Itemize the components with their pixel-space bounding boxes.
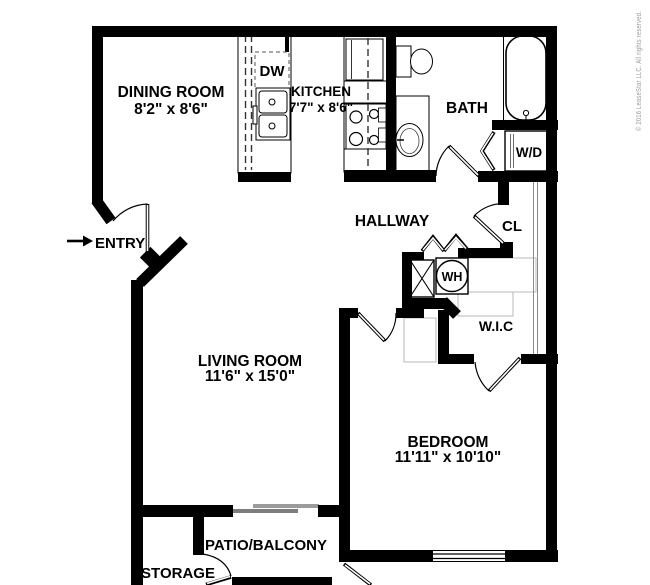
wd-bifold-door bbox=[482, 132, 494, 170]
wall-whcloset-top-stub bbox=[402, 252, 424, 260]
entry-door-arc bbox=[113, 204, 148, 221]
burner-icon bbox=[370, 136, 379, 145]
storage-label: STORAGE bbox=[141, 565, 215, 582]
wall-living-south bbox=[131, 505, 233, 517]
wall-peninsula-cap bbox=[238, 172, 291, 182]
entry-label: ENTRY bbox=[95, 235, 145, 252]
wall-patio-south bbox=[232, 577, 332, 585]
copyright-text: © 2016 LeaseStar LLC. All rights reserve… bbox=[635, 11, 643, 131]
bedroom-window bbox=[433, 551, 505, 561]
sliding-door-panel bbox=[233, 509, 298, 513]
shelf-outline bbox=[458, 258, 536, 292]
wall-bedroom-west bbox=[339, 308, 350, 562]
wall-cl-stub-upper bbox=[498, 182, 509, 205]
bath-label: BATH bbox=[446, 100, 488, 117]
burner-icon bbox=[350, 133, 363, 146]
entry-arrow-icon bbox=[67, 236, 93, 247]
bedroom-door-arc bbox=[385, 313, 396, 341]
sliding-door-panel bbox=[253, 504, 319, 508]
water-heater-label: WH bbox=[442, 270, 463, 284]
wall-left-lower bbox=[131, 280, 143, 585]
bathtub-icon bbox=[506, 36, 546, 120]
door-leaf-inner bbox=[345, 565, 370, 584]
kitchen-label: KITCHEN bbox=[291, 84, 351, 99]
sliding-door bbox=[233, 504, 319, 513]
tub-drain-icon bbox=[523, 110, 528, 115]
kitchen-dims: 7'7" x 8'6" bbox=[289, 100, 353, 115]
dining-room-label: DINING ROOM bbox=[118, 84, 225, 101]
wall-wic-south-left bbox=[438, 354, 474, 364]
bedroom-dims: 11'11" x 10'10" bbox=[395, 449, 502, 466]
wall-tub-south bbox=[492, 120, 558, 130]
dining-room-dims: 8'2" x 8'6" bbox=[134, 101, 208, 118]
wall-wd-south bbox=[478, 171, 558, 182]
kitchen-peninsula bbox=[238, 33, 291, 173]
wall-left-upper bbox=[92, 26, 103, 204]
arrow-head bbox=[83, 236, 93, 247]
floorplan-svg: DINING ROOM 8'2" x 8'6" KITCHEN 7'7" x 8… bbox=[0, 0, 650, 585]
wall-kitchen-bath bbox=[386, 26, 396, 178]
wall-bedroom-north bbox=[396, 308, 424, 318]
wall-patio-west bbox=[193, 517, 204, 555]
wall-wic-south-right bbox=[521, 354, 558, 364]
door-leaf-inner bbox=[450, 147, 478, 175]
window-opening bbox=[433, 551, 505, 561]
cl-door-arc bbox=[474, 204, 504, 217]
door-leaf-inner bbox=[475, 217, 503, 243]
shelf-outline bbox=[404, 318, 436, 362]
wall-entry-angle-upper bbox=[96, 200, 111, 221]
wic-door-arc bbox=[475, 362, 489, 391]
burner-icon bbox=[370, 110, 379, 119]
washer-dryer-label: W/D bbox=[516, 145, 542, 160]
wall-kitchen-south bbox=[344, 170, 436, 182]
wall-living-south-stub bbox=[318, 505, 339, 517]
bath-door-arc bbox=[436, 146, 449, 176]
cl-label: CL bbox=[502, 218, 522, 235]
door-leaf-inner bbox=[359, 314, 384, 340]
stove-control-icon bbox=[379, 108, 387, 122]
wall-top-exterior bbox=[92, 26, 557, 37]
sink-drain-icon bbox=[269, 99, 275, 105]
wall-bedroom-north-stub bbox=[339, 308, 358, 318]
faucet-icon bbox=[253, 106, 257, 124]
hallway-label: HALLWAY bbox=[355, 213, 430, 230]
door-leaf-inner bbox=[490, 359, 519, 390]
wic-label: W.I.C bbox=[479, 318, 513, 334]
toilet-bowl-icon bbox=[411, 49, 433, 74]
sink-drain-icon bbox=[269, 123, 275, 129]
shelf-outline bbox=[458, 292, 513, 316]
patio-balcony-label: PATIO/BALCONY bbox=[205, 537, 327, 554]
living-room-dims: 11'6" x 15'0" bbox=[205, 368, 295, 385]
floorplan-canvas: DINING ROOM 8'2" x 8'6" KITCHEN 7'7" x 8… bbox=[0, 0, 650, 585]
dishwasher-label: DW bbox=[260, 63, 286, 80]
stove-control-icon bbox=[379, 128, 387, 142]
toilet-tank-icon bbox=[396, 46, 411, 77]
wall-right-exterior bbox=[546, 26, 557, 562]
